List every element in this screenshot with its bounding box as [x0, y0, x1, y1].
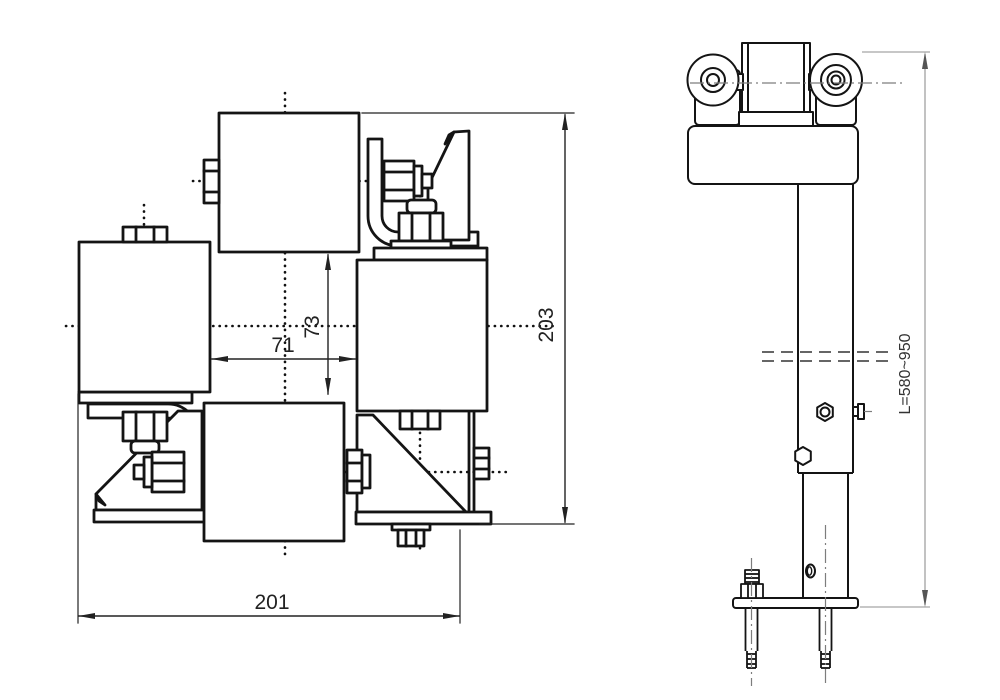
dim-label-203: 203 — [535, 307, 558, 342]
bolt-cap — [407, 200, 436, 213]
axle-nut — [152, 452, 184, 492]
base-plate — [94, 510, 207, 522]
bottom-right-bracket — [356, 413, 491, 546]
front-view: 71 73 203 201 — [66, 93, 574, 623]
technical-drawing: 71 73 203 201 — [0, 0, 1000, 700]
side-view: L=580~950 — [688, 43, 931, 686]
dim-label-71: 71 — [271, 334, 294, 357]
dim-label-201: 201 — [254, 591, 289, 614]
top-nut — [123, 227, 167, 242]
top-roller — [219, 113, 359, 252]
axle-nut — [384, 161, 414, 201]
axle-shaft — [134, 465, 144, 479]
outer-post — [798, 184, 853, 473]
face-bolt-circle — [821, 408, 830, 417]
dimension-73 — [325, 253, 331, 395]
side-bolt-head — [858, 404, 864, 419]
mount-plate — [374, 248, 487, 260]
axle-head — [204, 160, 219, 203]
break-marks — [762, 352, 890, 361]
left-wheel-bolt — [707, 74, 719, 86]
bottom-nut — [400, 411, 440, 429]
top-right-bracket — [368, 131, 487, 260]
under-nut — [398, 530, 424, 546]
left-roller — [79, 242, 210, 392]
bottom-roller — [204, 403, 344, 541]
mount-plate — [79, 392, 192, 403]
bolt-nut — [123, 412, 167, 441]
center-block — [735, 43, 817, 112]
side-bolt-head — [474, 448, 489, 479]
axle-nut — [347, 450, 362, 493]
dim-label-73: 73 — [301, 315, 324, 338]
bottom-left-bracket — [79, 392, 207, 522]
left-bolt-hex — [795, 447, 811, 465]
anchor-bolts — [741, 570, 832, 668]
pin-hole-inner — [807, 567, 811, 575]
dimension-L — [860, 52, 930, 607]
axle-shaft — [422, 174, 432, 188]
axle-washer — [362, 455, 370, 488]
drawing-canvas: 71 73 203 201 — [0, 0, 1000, 700]
top-plate — [739, 112, 813, 126]
base-plate — [356, 512, 491, 524]
right-roller — [357, 260, 487, 411]
bolt-nut — [399, 213, 443, 241]
dim-label-post-length: L=580~950 — [897, 333, 914, 414]
clamp-body — [688, 126, 858, 184]
